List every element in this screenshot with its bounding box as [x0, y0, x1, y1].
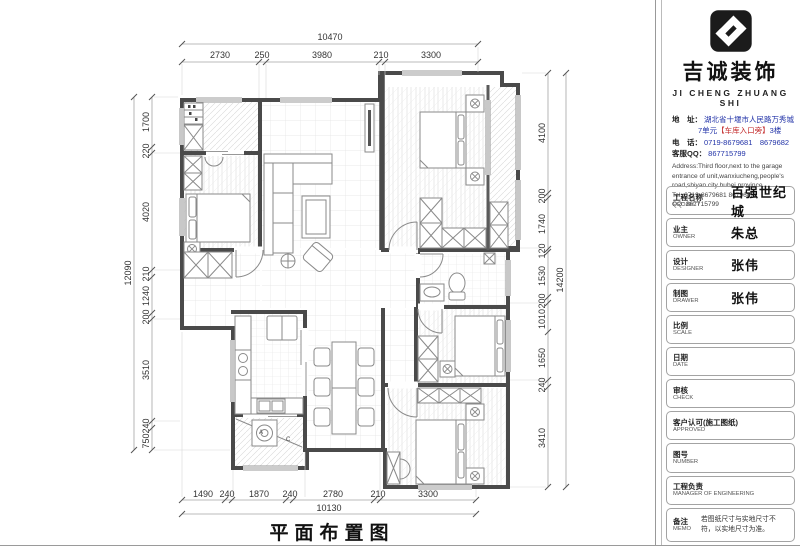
dim-label: 250	[254, 50, 269, 60]
dim-label: 4020	[141, 202, 151, 222]
dim-label: 1010	[537, 309, 547, 329]
dim-label: 750	[141, 433, 151, 448]
field-manager: 工程负责MANAGER OF ENGINEERING	[666, 476, 795, 505]
plan-title: 平面布置图	[269, 521, 394, 544]
address-value: 湖北省十堰市人民路万秀城	[704, 115, 794, 124]
field-approved-label-en: APPROVED	[673, 427, 751, 434]
field-memo-value: 若图纸尺寸与实地尺寸不符，以实地尺寸为准。	[701, 515, 788, 534]
tel-label: 电 话：	[672, 138, 702, 147]
field-owner-value: 朱总	[731, 223, 759, 242]
field-drawer-label-zh: 制图	[673, 289, 731, 298]
field-project-value: 百强世纪城	[731, 182, 788, 220]
dim-label: 1650	[537, 348, 547, 368]
dim-label: 210	[141, 266, 151, 281]
title-block-panel: 吉诚装饰 JI CHENG ZHUANG SHI 地 址：湖北省十堰市人民路万秀…	[655, 0, 800, 546]
field-memo-label-en: MEMO	[673, 526, 701, 533]
field-date: 日期DATE	[666, 347, 795, 376]
title-block-fields: 工程名称PROJECT百强世纪城 业主OWNER朱总 设计DESIGNER张伟 …	[666, 186, 795, 542]
floor-plan-area: A C 10470 2730 250 3980 210 3300 12090 1…	[0, 0, 655, 560]
company-name-en: JI CHENG ZHUANG SHI	[662, 88, 799, 108]
qq-value: 867715799	[708, 149, 746, 158]
balcony-label-c: C	[286, 437, 291, 443]
field-designer-value: 张伟	[731, 255, 759, 274]
dim-label: 3510	[141, 360, 151, 380]
dim-label: 1490	[193, 489, 213, 499]
dim-label: 3980	[312, 50, 332, 60]
dim-label: 200	[537, 188, 547, 203]
dim-label: 3300	[421, 50, 441, 60]
dim-label: 2780	[323, 489, 343, 499]
dim-label: 1530	[537, 266, 547, 286]
field-scale-label-zh: 比例	[673, 321, 731, 330]
dim-label: 3300	[418, 489, 438, 499]
field-drawer: 制图DRAWER张伟	[666, 283, 795, 312]
field-project-label-en: PROJECT	[673, 202, 731, 209]
field-scale-label-en: SCALE	[673, 330, 731, 337]
field-designer-label-zh: 设计	[673, 257, 731, 266]
field-memo: 备注MEMO若图纸尺寸与实地尺寸不符，以实地尺寸为准。	[666, 508, 795, 542]
company-name: 吉诚装饰	[662, 56, 799, 86]
dim-label: 210	[370, 489, 385, 499]
field-drawer-value: 张伟	[731, 288, 759, 307]
address-value-2-highlight: 【车库入口旁】	[717, 126, 770, 135]
address-value-2: 7单元	[698, 126, 717, 135]
dim-label: 10470	[317, 32, 342, 42]
field-check: 审核CHECK	[666, 379, 795, 408]
dim-label: 1700	[141, 112, 151, 132]
field-owner-label-zh: 业主	[673, 225, 731, 234]
field-date-label-en: DATE	[673, 362, 731, 369]
dim-label: 240	[537, 377, 547, 392]
dim-label: 120	[537, 243, 547, 258]
address-label: 地 址：	[672, 115, 702, 124]
dim-label: 2730	[210, 50, 230, 60]
dim-label: 1240	[141, 286, 151, 306]
field-drawer-label-en: DRAWER	[673, 298, 731, 305]
dim-label: 3410	[537, 428, 547, 448]
balcony-label-a: A	[259, 430, 263, 436]
field-project: 工程名称PROJECT百强世纪城	[666, 186, 795, 215]
field-approved-label-zh: 客户认可(施工图纸)	[673, 418, 751, 427]
field-owner: 业主OWNER朱总	[666, 218, 795, 247]
tel-value: 0719-8679681 8679682	[704, 138, 789, 147]
field-scale: 比例SCALE	[666, 315, 795, 344]
dim-label: 240	[141, 418, 151, 433]
dim-label: 210	[373, 50, 388, 60]
field-project-label-zh: 工程名称	[673, 193, 731, 202]
dim-label: 1740	[537, 214, 547, 234]
field-number-label-en: NUMBER	[673, 459, 731, 466]
field-manager-label-en: MANAGER OF ENGINEERING	[673, 491, 765, 498]
dim-label: 1870	[249, 489, 269, 499]
dim-label: 220	[141, 143, 151, 158]
dim-label: 200	[141, 309, 151, 324]
dim-label: 240	[219, 489, 234, 499]
field-manager-label-zh: 工程负责	[673, 482, 765, 491]
field-check-label-en: CHECK	[673, 395, 731, 402]
dim-label: 4100	[537, 123, 547, 143]
dim-label: 240	[282, 489, 297, 499]
logo-icon	[708, 8, 754, 54]
company-contact: 地 址：湖北省十堰市人民路万秀城 7单元【车库入口旁】3楼 电 话：0719-8…	[672, 114, 793, 159]
field-approved: 客户认可(施工图纸)APPROVED	[666, 411, 795, 440]
company-logo	[708, 8, 754, 54]
dim-label: 12090	[123, 260, 133, 285]
field-memo-label-zh: 备注	[673, 517, 701, 526]
floor-plan-drawing: A C 10470 2730 250 3980 210 3300 12090 1…	[0, 0, 655, 560]
qq-label: 客服QQ：	[672, 149, 706, 158]
address-value-2-tail: 3楼	[770, 126, 782, 135]
field-designer-label-en: DESIGNER	[673, 266, 731, 273]
dim-label: 200	[537, 293, 547, 308]
field-check-label-zh: 审核	[673, 386, 731, 395]
field-designer: 设计DESIGNER张伟	[666, 250, 795, 279]
dim-label: 14200	[555, 267, 565, 292]
drawing-sheet: A C 10470 2730 250 3980 210 3300 12090 1…	[0, 0, 800, 560]
field-date-label-zh: 日期	[673, 353, 731, 362]
field-number: 图号NUMBER	[666, 443, 795, 472]
sheet-border-bottom	[0, 545, 800, 546]
field-owner-label-en: OWNER	[673, 234, 731, 241]
field-number-label-zh: 图号	[673, 450, 731, 459]
dim-label: 10130	[316, 503, 341, 513]
